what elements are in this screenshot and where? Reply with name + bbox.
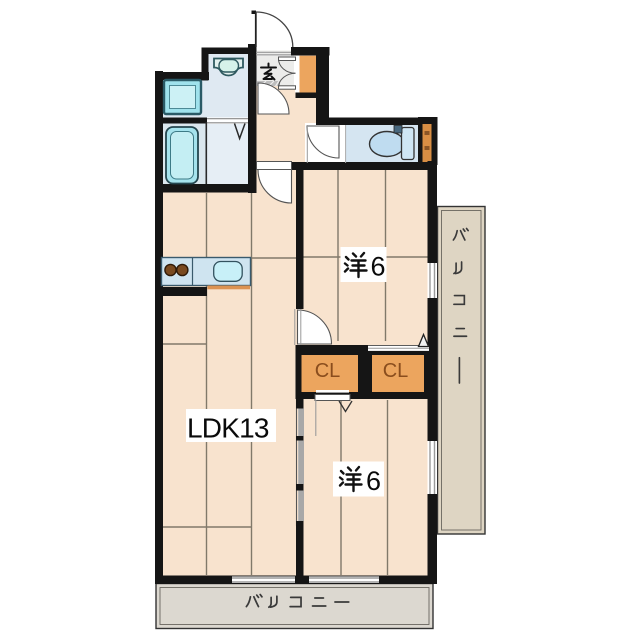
svg-text:6: 6 — [371, 252, 386, 282]
svg-text:LDK13: LDK13 — [187, 413, 269, 444]
svg-text:CL: CL — [383, 360, 409, 382]
svg-text:6: 6 — [366, 466, 381, 496]
svg-text:CL: CL — [315, 360, 341, 382]
